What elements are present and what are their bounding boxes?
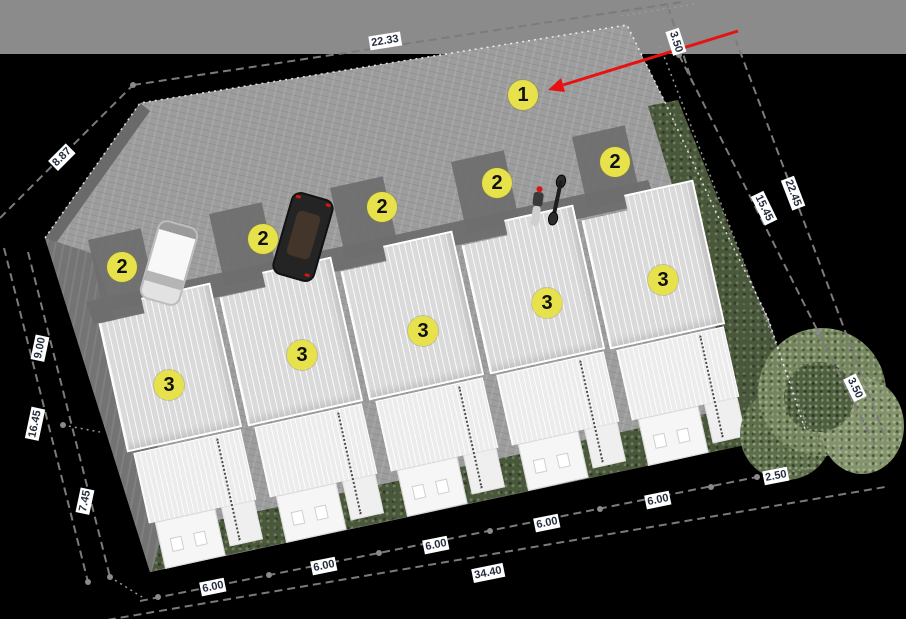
terrace-furniture bbox=[653, 433, 668, 449]
terrace-furniture bbox=[412, 484, 427, 500]
dim-label: 6.00 bbox=[310, 557, 338, 576]
terrace-furniture bbox=[676, 428, 691, 444]
marker-1-entrance: 1 bbox=[508, 80, 538, 110]
terrace-furniture bbox=[314, 505, 329, 521]
car-roof-panel bbox=[286, 210, 322, 261]
dim-label: 6.00 bbox=[533, 514, 561, 533]
dim-label: 7.45 bbox=[76, 487, 95, 515]
dim-label: 15.45 bbox=[751, 191, 777, 225]
dim-label: 6.00 bbox=[199, 578, 227, 597]
torso bbox=[532, 191, 544, 206]
terrace-furniture bbox=[193, 531, 208, 547]
dim-label: 34.40 bbox=[471, 563, 505, 583]
terrace-furniture bbox=[435, 479, 450, 495]
marker-3-unit: 3 bbox=[648, 265, 678, 295]
dim-label: 9.00 bbox=[31, 334, 50, 362]
tail-light bbox=[304, 273, 310, 277]
dim-label: 6.00 bbox=[644, 491, 672, 510]
marker-3-unit: 3 bbox=[408, 316, 438, 346]
marker-3-unit: 3 bbox=[532, 288, 562, 318]
tree bbox=[740, 318, 906, 490]
unit-side-wing bbox=[584, 422, 626, 468]
site-plan-render: 22.33 3.50 8.87 9.00 16.45 7.45 15.45 22… bbox=[0, 0, 906, 619]
terrace-furniture bbox=[533, 458, 548, 474]
unit-side-wing bbox=[463, 448, 505, 494]
dim-label: 22.45 bbox=[781, 176, 805, 210]
bicycle-wheel bbox=[547, 211, 560, 227]
marker-2-parking: 2 bbox=[367, 192, 397, 222]
terrace-furniture bbox=[170, 536, 185, 552]
road-strip bbox=[0, 0, 906, 54]
marker-3-unit: 3 bbox=[154, 370, 184, 400]
tree-foliage bbox=[784, 362, 854, 432]
dim-label: 6.00 bbox=[422, 536, 450, 555]
marker-2-parking: 2 bbox=[482, 168, 512, 198]
dim-label: 8.87 bbox=[48, 143, 76, 171]
unit-side-wing bbox=[342, 474, 384, 520]
tail-light bbox=[325, 203, 331, 207]
dim-label: 16.45 bbox=[25, 407, 45, 441]
tail-light bbox=[296, 195, 302, 199]
terrace-furniture bbox=[556, 453, 571, 469]
marker-2-parking: 2 bbox=[248, 224, 278, 254]
legs bbox=[530, 205, 541, 226]
marker-2-parking: 2 bbox=[107, 252, 137, 282]
unit-side-wing bbox=[221, 500, 263, 546]
terrace-furniture bbox=[291, 510, 306, 526]
marker-2-parking: 2 bbox=[600, 147, 630, 177]
marker-3-unit: 3 bbox=[287, 340, 317, 370]
